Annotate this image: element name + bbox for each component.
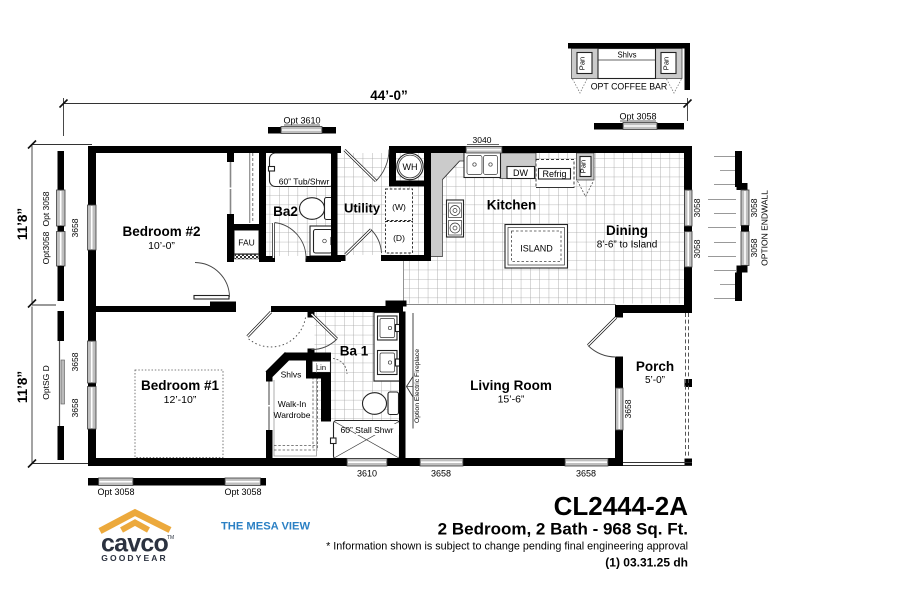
svg-text:(1) 03.31.25 dh: (1) 03.31.25 dh — [605, 556, 688, 570]
svg-text:GOODYEAR: GOODYEAR — [101, 553, 167, 563]
svg-text:Walk-In: Walk-In — [278, 399, 307, 409]
svg-text:3058: 3058 — [692, 239, 702, 258]
svg-text:Wardrobe: Wardrobe — [273, 410, 310, 420]
svg-text:Option Electric Fireplace: Option Electric Fireplace — [414, 349, 421, 423]
svg-text:Pan: Pan — [578, 57, 587, 70]
svg-text:Pan: Pan — [579, 160, 588, 173]
svg-text:OPT COFFEE BAR: OPT COFFEE BAR — [591, 82, 668, 92]
svg-text:3040: 3040 — [473, 135, 492, 145]
svg-text:3058: 3058 — [749, 238, 759, 257]
svg-text:Pan: Pan — [662, 57, 671, 70]
svg-text:OPTION ENDWALL: OPTION ENDWALL — [760, 190, 770, 266]
svg-text:Opt 3058: Opt 3058 — [619, 112, 656, 122]
svg-text:Ba 1: Ba 1 — [340, 344, 369, 359]
svg-text:Shlvs: Shlvs — [617, 51, 636, 60]
svg-text:WH: WH — [403, 162, 418, 172]
svg-text:3658: 3658 — [623, 399, 633, 418]
svg-text:15’-6”: 15’-6” — [498, 394, 525, 406]
svg-text:CL2444-2A: CL2444-2A — [554, 491, 689, 521]
svg-text:3658: 3658 — [431, 469, 451, 479]
svg-text:Bedroom #2: Bedroom #2 — [122, 224, 200, 239]
svg-text:60” Tub/Shwr: 60” Tub/Shwr — [279, 177, 330, 187]
svg-text:60” Stall Shwr: 60” Stall Shwr — [341, 425, 394, 435]
svg-text:11’8”: 11’8” — [15, 371, 30, 403]
svg-text:11’8”: 11’8” — [15, 208, 30, 240]
svg-text:5’-0”: 5’-0” — [645, 375, 665, 386]
svg-text:Opt3058: Opt3058 — [41, 231, 51, 264]
svg-text:Refrig: Refrig — [542, 169, 566, 179]
svg-text:Opt 3610: Opt 3610 — [283, 116, 320, 126]
svg-text:Utility: Utility — [344, 201, 381, 216]
svg-text:3658: 3658 — [70, 218, 80, 237]
svg-text:2 Bedroom, 2 Bath - 968 Sq. Ft: 2 Bedroom, 2 Bath - 968 Sq. Ft. — [438, 520, 688, 539]
svg-text:* Information shown is subject: * Information shown is subject to change… — [326, 541, 688, 553]
svg-text:Kitchen: Kitchen — [487, 198, 537, 213]
svg-text:Dining: Dining — [606, 223, 648, 238]
svg-text:44’-0”: 44’-0” — [370, 88, 408, 103]
svg-text:3058: 3058 — [749, 198, 759, 217]
svg-text:(W): (W) — [392, 202, 406, 212]
svg-text:Opt 3058: Opt 3058 — [224, 487, 261, 497]
svg-text:THE MESA VIEW: THE MESA VIEW — [221, 521, 311, 533]
svg-text:ISLAND: ISLAND — [520, 244, 553, 254]
svg-text:8’-6” to Island: 8’-6” to Island — [597, 240, 658, 251]
svg-text:Bedroom #1: Bedroom #1 — [141, 378, 220, 393]
svg-text:3658: 3658 — [70, 398, 80, 417]
svg-text:DW: DW — [513, 168, 528, 178]
svg-text:3658: 3658 — [70, 352, 80, 371]
svg-text:Living Room: Living Room — [470, 378, 552, 393]
svg-text:Ba2: Ba2 — [273, 204, 298, 219]
svg-text:Opt 3058: Opt 3058 — [41, 191, 51, 226]
svg-text:Shlvs: Shlvs — [281, 370, 302, 380]
svg-text:Opt 3058: Opt 3058 — [97, 487, 134, 497]
svg-text:3610: 3610 — [357, 469, 377, 479]
svg-text:3058: 3058 — [692, 198, 702, 217]
svg-text:12’-10”: 12’-10” — [164, 394, 197, 406]
svg-text:TM: TM — [167, 535, 174, 541]
svg-text:Lin: Lin — [316, 363, 326, 372]
svg-text:10’-0”: 10’-0” — [148, 240, 175, 252]
svg-text:Porch: Porch — [636, 359, 674, 374]
svg-text:(D): (D) — [393, 233, 405, 243]
svg-text:OptSG D: OptSG D — [41, 365, 51, 399]
svg-text:FAU: FAU — [238, 238, 255, 248]
svg-text:3658: 3658 — [576, 469, 596, 479]
